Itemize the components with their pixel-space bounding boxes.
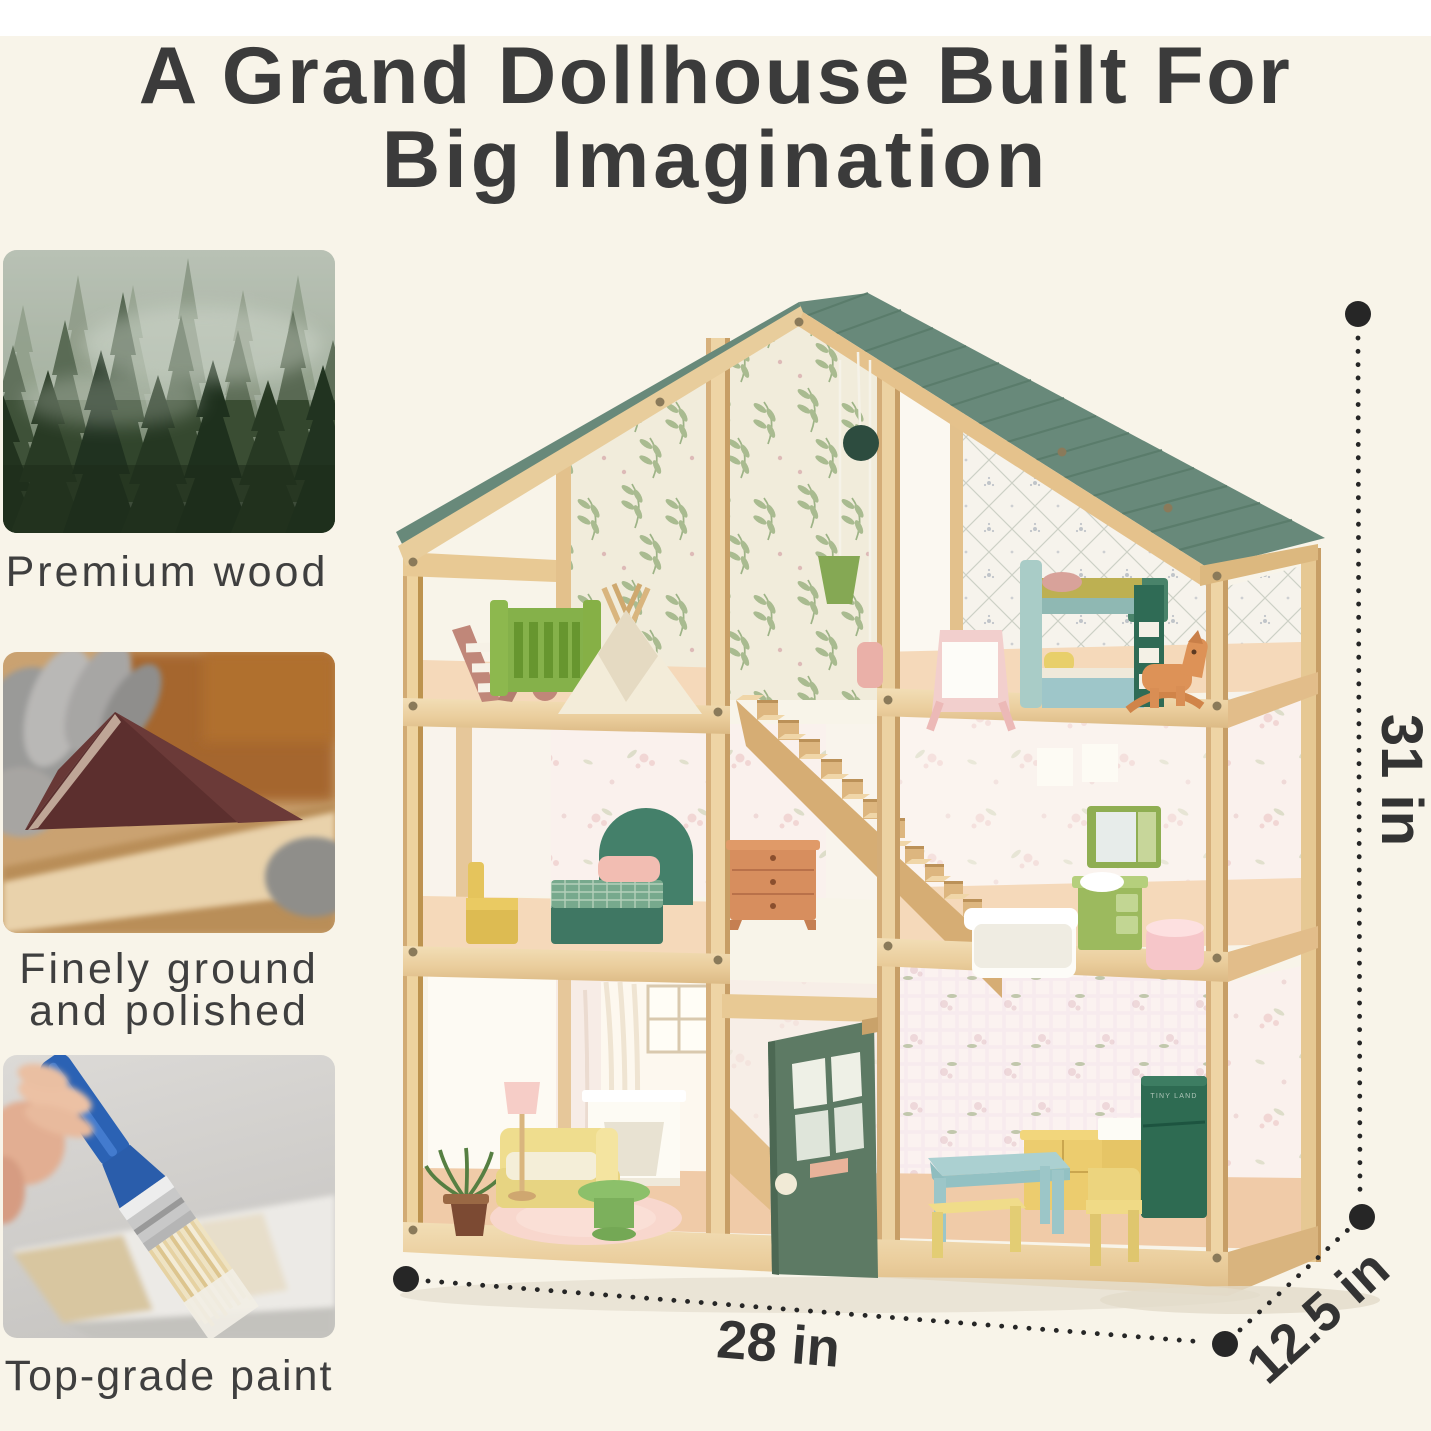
svg-text:31 in: 31 in: [1369, 714, 1431, 846]
svg-text:TINY LAND: TINY LAND: [1150, 1093, 1197, 1100]
svg-text:28 in: 28 in: [715, 1309, 842, 1378]
